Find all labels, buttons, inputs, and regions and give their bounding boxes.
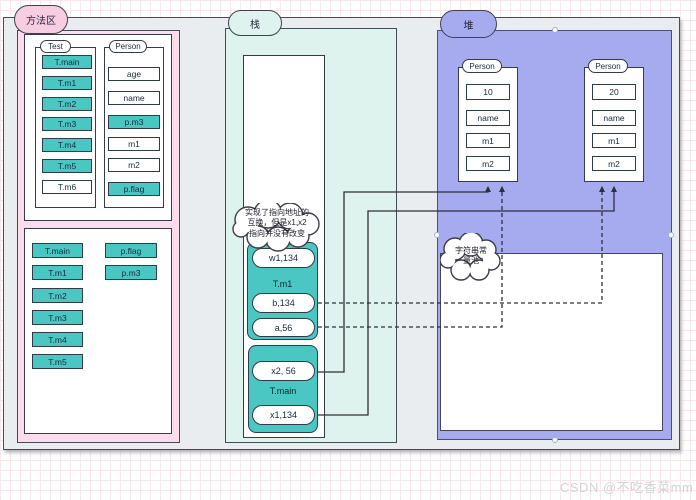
- heap-field[interactable]: name: [466, 110, 510, 126]
- heap-field[interactable]: 10: [466, 84, 510, 100]
- heap-field[interactable]: m1: [592, 133, 636, 148]
- method-area-loaded-box[interactable]: [24, 228, 172, 434]
- stack-frame-name: T.main: [248, 386, 318, 396]
- method-area-label-bubble[interactable]: 方法区: [14, 5, 68, 34]
- heap-person-1-label[interactable]: Person: [462, 59, 502, 73]
- method-cell[interactable]: T.main: [42, 55, 92, 69]
- heap-field[interactable]: m2: [592, 156, 636, 171]
- csdn-watermark: CSDN @不吃香菜mm: [560, 477, 693, 496]
- test-class-label[interactable]: Test: [40, 40, 71, 53]
- cloud-callout-icon[interactable]: [232, 203, 322, 253]
- method-cell[interactable]: name: [108, 91, 160, 105]
- heap-label: 堆: [464, 17, 474, 32]
- method-cell[interactable]: T.m3: [42, 117, 92, 131]
- stack-slot[interactable]: x1,134: [252, 405, 315, 425]
- method-cell[interactable]: T.m1: [42, 76, 92, 90]
- method-cell[interactable]: p.flag: [108, 182, 160, 196]
- selection-handle[interactable]: [434, 232, 440, 238]
- method-cell[interactable]: T.m4: [42, 138, 92, 152]
- loaded-cell[interactable]: T.m1: [32, 265, 83, 280]
- loaded-cell[interactable]: T.main: [32, 243, 83, 258]
- loaded-cell[interactable]: p.flag: [105, 243, 157, 258]
- method-cell[interactable]: m1: [108, 137, 160, 151]
- stack-label: 栈: [250, 16, 260, 31]
- heap-field[interactable]: m2: [466, 156, 510, 171]
- method-cell[interactable]: T.m2: [42, 97, 92, 111]
- heap-field[interactable]: 20: [592, 84, 636, 100]
- cloud-callout-icon[interactable]: [440, 233, 502, 285]
- heap-field[interactable]: name: [592, 110, 636, 126]
- heap-field[interactable]: m1: [466, 133, 510, 148]
- method-cell[interactable]: m2: [108, 158, 160, 172]
- heap-label-bubble[interactable]: 堆: [440, 10, 497, 38]
- stack-slot[interactable]: b,134: [252, 293, 315, 313]
- method-cell[interactable]: T.m5: [42, 159, 92, 173]
- stack-slot[interactable]: a,56: [252, 318, 315, 337]
- heap-person-2-label[interactable]: Person: [588, 59, 628, 73]
- loaded-cell[interactable]: T.m2: [32, 288, 83, 303]
- loaded-cell[interactable]: T.m5: [32, 354, 83, 369]
- method-area-label: 方法区: [26, 12, 56, 27]
- stack-label-bubble[interactable]: 栈: [228, 10, 282, 36]
- loaded-cell[interactable]: T.m3: [32, 310, 83, 325]
- diagram-page: { "labels": { "method_area": "方法区", "sta…: [0, 0, 696, 500]
- stack-frame-name: T.m1: [247, 279, 318, 289]
- loaded-cell[interactable]: p.m3: [105, 265, 157, 280]
- selection-handle[interactable]: [552, 437, 558, 443]
- method-cell[interactable]: age: [108, 67, 160, 81]
- stack-slot[interactable]: x2, 56: [252, 361, 315, 381]
- method-cell[interactable]: T.m6: [42, 180, 92, 194]
- selection-handle[interactable]: [552, 27, 558, 33]
- selection-handle[interactable]: [668, 232, 674, 238]
- method-cell[interactable]: p.m3: [108, 115, 160, 129]
- loaded-cell[interactable]: T.m4: [32, 332, 83, 347]
- person-class-label[interactable]: Person: [109, 40, 147, 53]
